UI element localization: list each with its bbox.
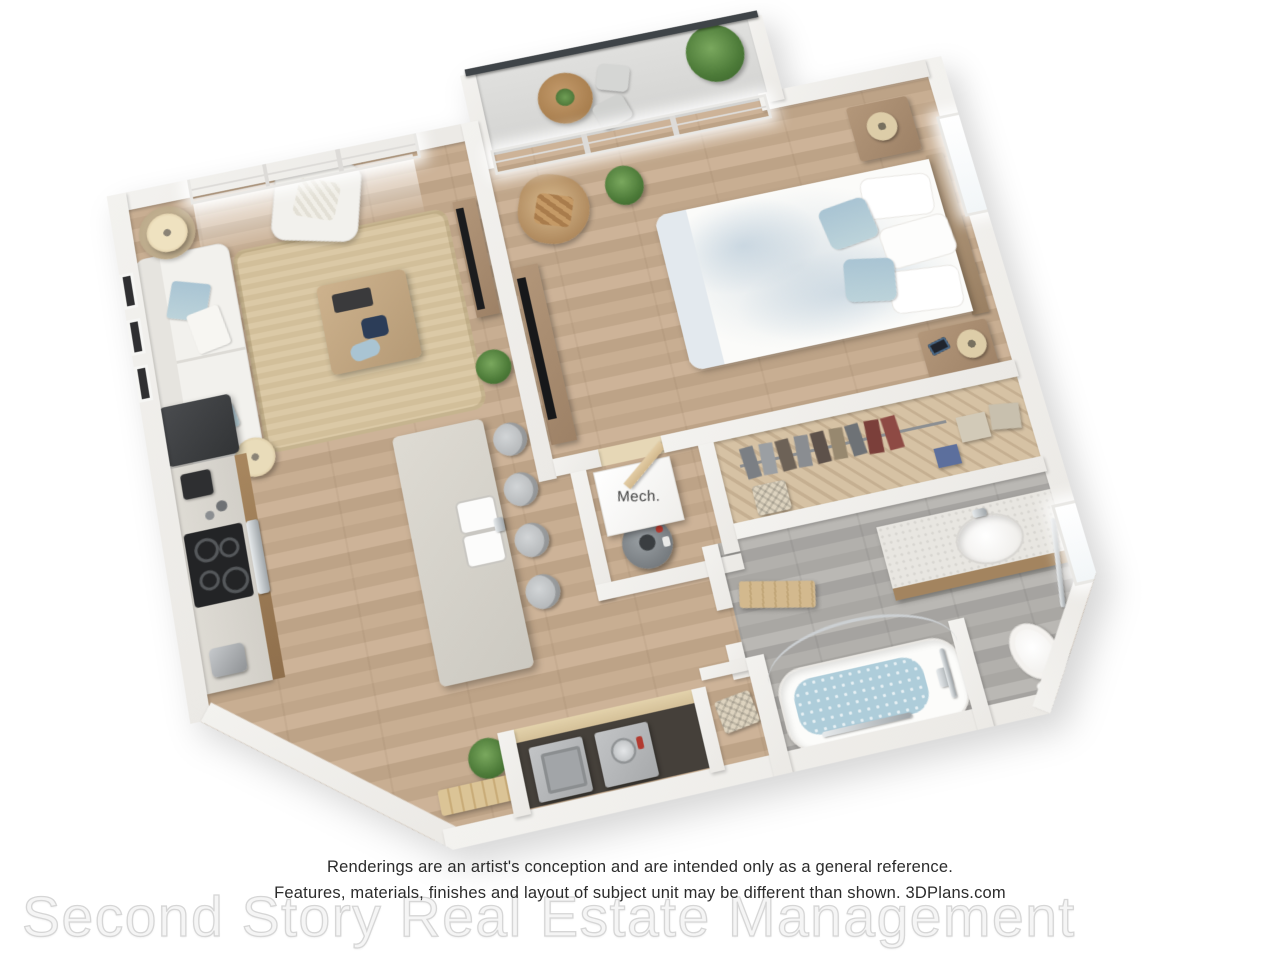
mech-room-label: Mech. xyxy=(600,487,677,505)
dryer-dial xyxy=(609,735,639,766)
burner-1 xyxy=(193,536,221,565)
closet-box-2 xyxy=(988,402,1021,429)
water-heater-pipe xyxy=(662,536,671,547)
disclaimer-line-2: Features, materials, finishes and layout… xyxy=(0,884,1280,903)
wicker-chair-throw xyxy=(533,193,574,228)
dryer-button-red xyxy=(636,736,645,750)
building-shell: Mech. xyxy=(86,0,1140,926)
cooktop xyxy=(183,522,254,608)
disclaimer-line-1: Renderings are an artist's conception an… xyxy=(0,858,1280,877)
coffee-table xyxy=(316,268,423,375)
washer xyxy=(528,736,593,803)
floor-plan: Mech. xyxy=(86,0,1140,926)
bath-mat xyxy=(1075,650,1109,688)
coffee-table-decor-dark xyxy=(331,287,373,313)
water-heater-valve-red xyxy=(655,525,664,533)
washer-door xyxy=(540,745,588,794)
balcony-chair-1 xyxy=(596,63,631,92)
coffee-table-decor-navy xyxy=(360,314,389,340)
bed-pillow-white-3 xyxy=(886,264,966,316)
burner-2 xyxy=(218,535,242,559)
burner-4 xyxy=(220,564,251,596)
coffee-table-decor-blue-dish xyxy=(348,337,382,364)
bath-entry-bench xyxy=(739,581,816,608)
bed-pillow-blue-2 xyxy=(843,258,898,303)
water-heater-vent xyxy=(638,533,658,552)
burner-3 xyxy=(198,568,222,592)
armchair-pillow xyxy=(292,177,342,221)
